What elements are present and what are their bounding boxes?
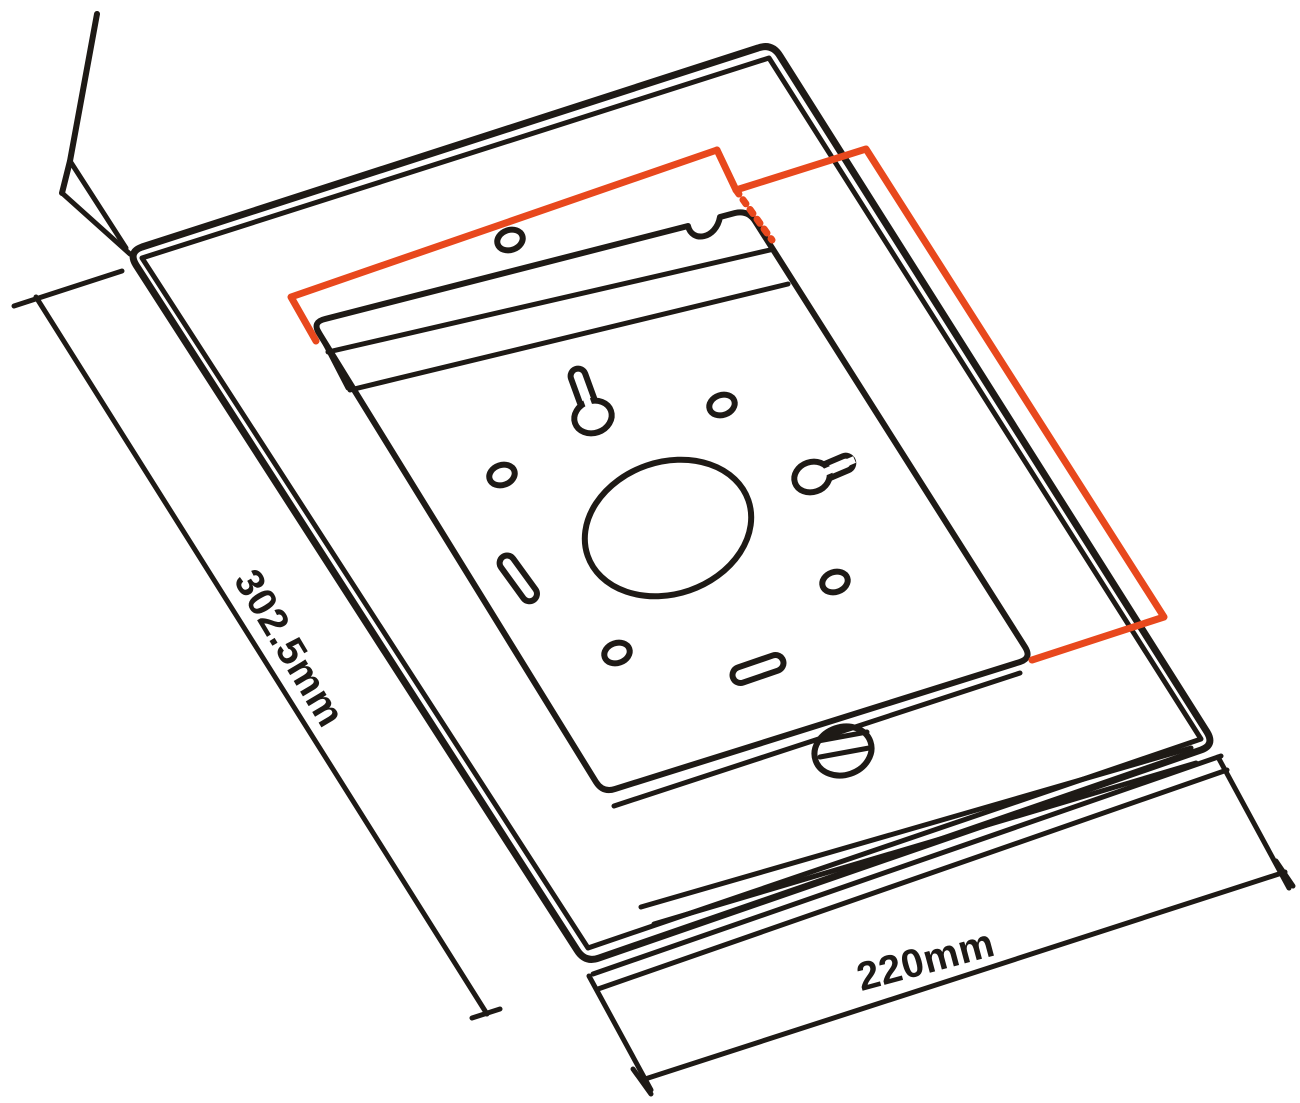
small-hole-right <box>819 568 850 595</box>
small-hole-left <box>486 461 517 488</box>
enclosure-inner-bezel-outline <box>142 58 1201 948</box>
enclosure-depth-line-1 <box>593 756 1221 974</box>
cable-slot-left <box>497 553 540 605</box>
tablet-enclosure-isometric-drawing: 302.5mm 220mm <box>0 0 1300 1103</box>
height-dimension-line <box>36 297 487 1014</box>
tablet-outline-highlight <box>291 149 1164 660</box>
height-extension-line <box>14 271 122 306</box>
highlight-top-step <box>717 150 736 190</box>
center-access-hole <box>566 438 770 618</box>
outer-enclosure <box>62 14 1227 989</box>
keyhole-slot-top <box>569 367 617 439</box>
dimension-height: 302.5mm <box>14 271 500 1018</box>
top-bar-end-cap <box>318 330 348 388</box>
small-hole-top-right <box>706 391 737 418</box>
height-dimension-label: 302.5mm <box>225 562 353 734</box>
cable-slot-bottom <box>730 653 785 685</box>
corner-fold-outer-line <box>62 14 97 193</box>
width-extension-line-left <box>589 976 651 1090</box>
width-dimension-line <box>642 872 1285 1080</box>
technical-drawing-page: 302.5mm 220mm <box>0 0 1300 1103</box>
enclosure-step-line-2 <box>654 763 1196 924</box>
keyhole-slot-right <box>790 453 856 497</box>
back-panel-hole <box>494 226 525 253</box>
small-hole-bottom <box>601 639 632 666</box>
locking-screw-slot-bottom <box>820 748 869 757</box>
locking-screw <box>808 719 878 783</box>
